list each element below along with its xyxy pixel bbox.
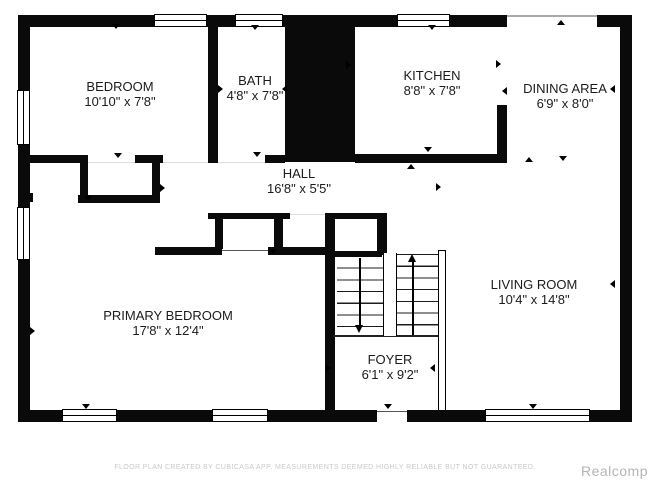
door-marker <box>251 25 259 30</box>
door-marker <box>430 364 435 372</box>
stair-arrow-up-head <box>408 254 416 262</box>
staircase-up-run <box>397 254 438 336</box>
wall-bottom <box>407 410 485 422</box>
wall-nub <box>27 193 33 202</box>
wall-bottom <box>268 410 377 422</box>
wall-primary-top <box>155 247 222 255</box>
wall-top <box>450 15 507 27</box>
front-door-marker <box>384 404 392 409</box>
wall-top <box>18 15 154 27</box>
room-name: BEDROOM <box>84 79 155 94</box>
door-marker <box>436 183 441 191</box>
wall-closet <box>215 219 223 249</box>
wall-bedroom-bath-divider <box>208 25 218 163</box>
door-marker <box>502 87 507 95</box>
opening-line <box>290 214 325 215</box>
floor-plan: BEDROOM 10'10" x 7'8" BATH 4'8" x 7'8" K… <box>0 0 650 488</box>
wall-kitchen-bottom <box>355 154 507 163</box>
chimney-mass <box>285 25 355 162</box>
window <box>154 14 207 27</box>
room-label-dining-area: DINING AREA 6'9" x 8'0" <box>523 81 607 111</box>
window <box>212 409 268 422</box>
wall-hall-top <box>28 155 88 163</box>
room-name: KITCHEN <box>403 68 460 83</box>
door-marker <box>610 85 615 93</box>
front-door-line <box>377 411 407 413</box>
window <box>17 207 30 260</box>
wall-left <box>18 260 30 422</box>
stair-arrow-down-head <box>355 325 363 333</box>
window <box>62 409 117 422</box>
door-marker <box>84 196 92 201</box>
room-dims: 8'8" x 7'8" <box>403 83 460 98</box>
door-marker <box>269 249 277 254</box>
door-marker <box>407 164 415 169</box>
wall-left <box>18 15 30 90</box>
wall-closet <box>274 219 283 249</box>
opening-line <box>163 162 208 163</box>
window <box>397 14 450 27</box>
room-label-bedroom: BEDROOM 10'10" x 7'8" <box>84 79 155 109</box>
room-label-bath: BATH 4'8" x 7'8" <box>227 73 284 103</box>
room-name: HALL <box>267 166 331 181</box>
room-name: LIVING ROOM <box>491 277 578 292</box>
room-label-primary-bedroom: PRIMARY BEDROOM 17'8" x 12'4" <box>103 308 233 338</box>
door-marker <box>610 280 615 288</box>
door-marker <box>112 24 120 29</box>
room-name: DINING AREA <box>523 81 607 96</box>
room-name: FOYER <box>362 352 419 367</box>
door-marker <box>529 404 537 409</box>
room-name: BATH <box>227 73 284 88</box>
door-marker <box>559 156 567 161</box>
window <box>485 409 590 422</box>
stair-railing-wall <box>438 250 446 410</box>
door-marker <box>346 61 351 69</box>
wall-foyer-divider <box>325 213 335 410</box>
room-name: PRIMARY BEDROOM <box>103 308 233 323</box>
room-dims: 17'8" x 12'4" <box>103 323 233 338</box>
room-dims: 4'8" x 7'8" <box>227 88 284 103</box>
stair-arrow-down <box>359 258 361 326</box>
wall-closet <box>152 155 160 203</box>
door-marker <box>30 327 35 335</box>
wall-right <box>620 15 632 422</box>
door-marker <box>160 184 165 192</box>
realcomp-watermark: Realcomp <box>581 463 648 479</box>
room-label-living-room: LIVING ROOM 10'4" x 14'8" <box>491 277 578 307</box>
wall-bottom <box>590 410 632 422</box>
wall-bottom <box>18 410 62 422</box>
staircase-divider <box>383 253 397 336</box>
room-dims: 10'4" x 14'8" <box>491 292 578 307</box>
wall-kitchen-dining <box>497 105 507 155</box>
disclaimer-text: FLOOR PLAN CREATED BY CUBICASA APP. MEAS… <box>114 464 535 471</box>
wall-hall-top <box>265 155 285 163</box>
door-marker <box>496 60 501 68</box>
door-marker <box>218 85 223 93</box>
room-dims: 10'10" x 7'8" <box>84 94 155 109</box>
door-marker <box>82 404 90 409</box>
wall-closet <box>377 219 387 255</box>
wall-bottom <box>117 410 212 422</box>
room-label-kitchen: KITCHEN 8'8" x 7'8" <box>403 68 460 98</box>
opening-line <box>88 162 135 163</box>
door-marker <box>424 147 432 152</box>
door-marker <box>525 157 533 162</box>
door-marker <box>253 152 261 157</box>
opening-line <box>507 15 597 17</box>
door-marker <box>557 20 565 25</box>
closet-slider-line <box>222 250 268 252</box>
room-label-hall: HALL 16'8" x 5'5" <box>267 166 331 196</box>
window <box>235 14 283 27</box>
room-dims: 16'8" x 5'5" <box>267 181 331 196</box>
opening-line <box>218 162 265 163</box>
room-dims: 6'1" x 9'2" <box>362 367 419 382</box>
stair-arrow-up <box>412 262 414 335</box>
room-label-foyer: FOYER 6'1" x 9'2" <box>362 352 419 382</box>
door-marker <box>114 153 122 158</box>
door-marker <box>326 364 331 372</box>
window <box>17 90 30 145</box>
wall-closet <box>80 163 88 198</box>
door-marker <box>428 25 436 30</box>
room-dims: 6'9" x 8'0" <box>523 96 607 111</box>
